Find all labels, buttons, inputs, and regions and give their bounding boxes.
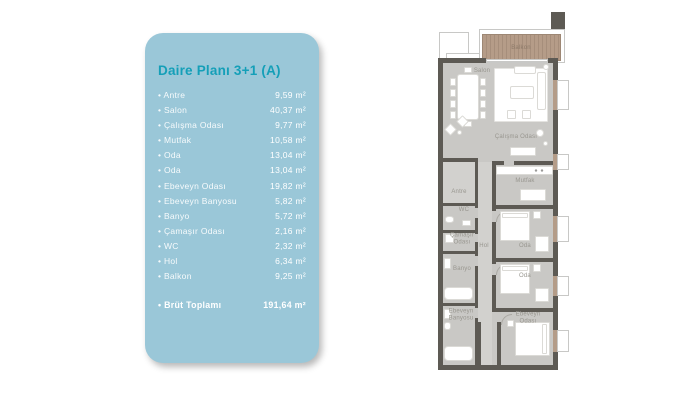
dresser <box>535 288 549 302</box>
list-item: Antre 9,59 m² <box>158 90 306 105</box>
partition <box>443 203 478 206</box>
room-area: 10,58 m² <box>270 135 306 145</box>
room-area: 5,72 m² <box>275 211 306 221</box>
room-label-banyo: Banyo <box>453 266 471 273</box>
partition <box>492 258 553 262</box>
gross-total-label: Brüt Toplamı <box>158 300 221 310</box>
apartment-info-card: Daire Planı 3+1 (A) Antre 9,59 m² Salon … <box>145 33 319 363</box>
room-label-mutfak: Mutfak <box>515 178 534 185</box>
closet-wall <box>497 322 501 365</box>
partition <box>475 266 478 308</box>
room-label-camasir-odasi: Çamaşır Odası <box>450 233 474 246</box>
room-area: 19,82 m² <box>270 181 306 191</box>
room-name: Çalışma Odası <box>158 120 224 130</box>
desk-chair <box>536 129 544 137</box>
room-area: 9,25 m² <box>275 271 306 281</box>
room-area-list: Antre 9,59 m² Salon 40,37 m² Çalışma Oda… <box>158 90 306 286</box>
room-name: Salon <box>158 105 187 115</box>
toilet <box>444 322 451 330</box>
list-item: Oda 13,04 m² <box>158 165 306 180</box>
side-table <box>457 130 462 135</box>
room-name: WC <box>158 241 179 251</box>
room-area: 9,59 m² <box>275 90 306 100</box>
bathtub <box>444 287 473 300</box>
nightstand <box>533 211 541 219</box>
wall-bottom <box>438 365 558 370</box>
room-area: 40,37 m² <box>270 105 306 115</box>
dining-chair <box>450 111 456 119</box>
room-label-calisma-odasi: Çalışma Odası <box>495 134 537 141</box>
room-name: Oda <box>158 150 181 160</box>
room-area: 9,77 m² <box>275 120 306 130</box>
plant <box>543 141 548 146</box>
dining-chair <box>480 100 486 108</box>
wall-left <box>438 58 443 370</box>
antre-floor <box>443 162 478 203</box>
list-item: Salon 40,37 m² <box>158 105 306 120</box>
window-box <box>557 80 569 110</box>
dining-chair <box>450 100 456 108</box>
list-item: Balkon 9,25 m² <box>158 271 306 286</box>
page-title: Daire Planı 3+1 (A) <box>158 63 306 78</box>
pillow <box>542 324 547 354</box>
dining-table <box>457 74 479 120</box>
partition <box>443 303 478 306</box>
partition <box>443 158 478 162</box>
kitchen-island <box>520 189 546 201</box>
list-item: Ebeveyn Odası 19,82 m² <box>158 181 306 196</box>
partition <box>475 162 478 208</box>
room-label-oda-2: Oda <box>519 273 531 280</box>
room-label-antre: Antre <box>451 189 466 196</box>
room-area: 5,82 m² <box>275 196 306 206</box>
dining-chair <box>450 78 456 86</box>
room-label-oda-1: Oda <box>519 243 531 250</box>
pillow <box>502 213 528 218</box>
sink <box>462 220 471 226</box>
room-name: Balkon <box>158 271 192 281</box>
partition <box>492 275 496 308</box>
ottoman <box>522 110 531 119</box>
room-name: Antre <box>158 90 185 100</box>
closet-wall <box>477 322 481 365</box>
nightstand <box>533 264 541 272</box>
list-item: Oda 13,04 m² <box>158 150 306 165</box>
dresser <box>535 236 549 252</box>
ottoman <box>507 110 516 119</box>
bathtub <box>444 346 473 361</box>
room-name: Hol <box>158 256 178 266</box>
desk <box>510 147 536 156</box>
pillow <box>502 266 528 271</box>
stove <box>532 167 546 174</box>
room-label-wc: WC <box>459 207 469 214</box>
room-name: Çamaşır Odası <box>158 226 225 236</box>
room-name: Ebeveyn Banyosu <box>158 196 237 206</box>
sink <box>444 258 451 269</box>
list-item: Çalışma Odası 9,77 m² <box>158 120 306 135</box>
floor-plan: Balkon <box>430 8 572 376</box>
partition <box>443 251 478 254</box>
floor-lamp <box>543 64 549 70</box>
list-item: Mutfak 10,58 m² <box>158 135 306 150</box>
room-name: Mutfak <box>158 135 191 145</box>
room-name: Oda <box>158 165 181 175</box>
list-item: Ebeveyn Banyosu 5,82 m² <box>158 196 306 211</box>
dining-chair <box>464 67 472 73</box>
wall-top-left <box>438 58 486 63</box>
room-area: 2,32 m² <box>275 241 306 251</box>
room-area: 13,04 m² <box>270 165 306 175</box>
room-area: 6,34 m² <box>275 256 306 266</box>
sofa <box>514 66 536 74</box>
coffee-table <box>510 86 534 99</box>
dining-chair <box>480 78 486 86</box>
room-label-salon: Salon <box>474 68 490 75</box>
room-area: 13,04 m² <box>270 150 306 160</box>
list-item: Çamaşır Odası 2,16 m² <box>158 226 306 241</box>
room-label-ebeveyn-banyosu: Ebeveyn Banyosu <box>447 309 475 322</box>
dining-chair <box>450 89 456 97</box>
window-box <box>557 216 569 242</box>
list-item: Banyo 5,72 m² <box>158 211 306 226</box>
partition <box>514 161 553 165</box>
balcony-door <box>486 59 548 62</box>
room-label-hol: Hol <box>479 243 489 250</box>
room-label-balkon: Balkon <box>511 45 531 52</box>
room-area: 2,16 m² <box>275 226 306 236</box>
window-box <box>557 330 569 352</box>
list-item: Hol 6,34 m² <box>158 256 306 271</box>
dining-chair <box>480 111 486 119</box>
partition <box>492 205 553 209</box>
room-label-ebeveyn-odasi: Ebeveyn Odası <box>513 312 543 325</box>
sofa <box>537 72 546 110</box>
window-box <box>557 154 569 170</box>
room-name: Ebeveyn Odası <box>158 181 226 191</box>
room-name: Banyo <box>158 211 190 221</box>
gross-total-row: Brüt Toplamı 191,64 m² <box>158 300 306 310</box>
dining-chair <box>480 89 486 97</box>
list-item: WC 2,32 m² <box>158 241 306 256</box>
toilet <box>445 216 454 223</box>
window-box <box>557 276 569 296</box>
gross-total-value: 191,64 m² <box>263 300 306 310</box>
